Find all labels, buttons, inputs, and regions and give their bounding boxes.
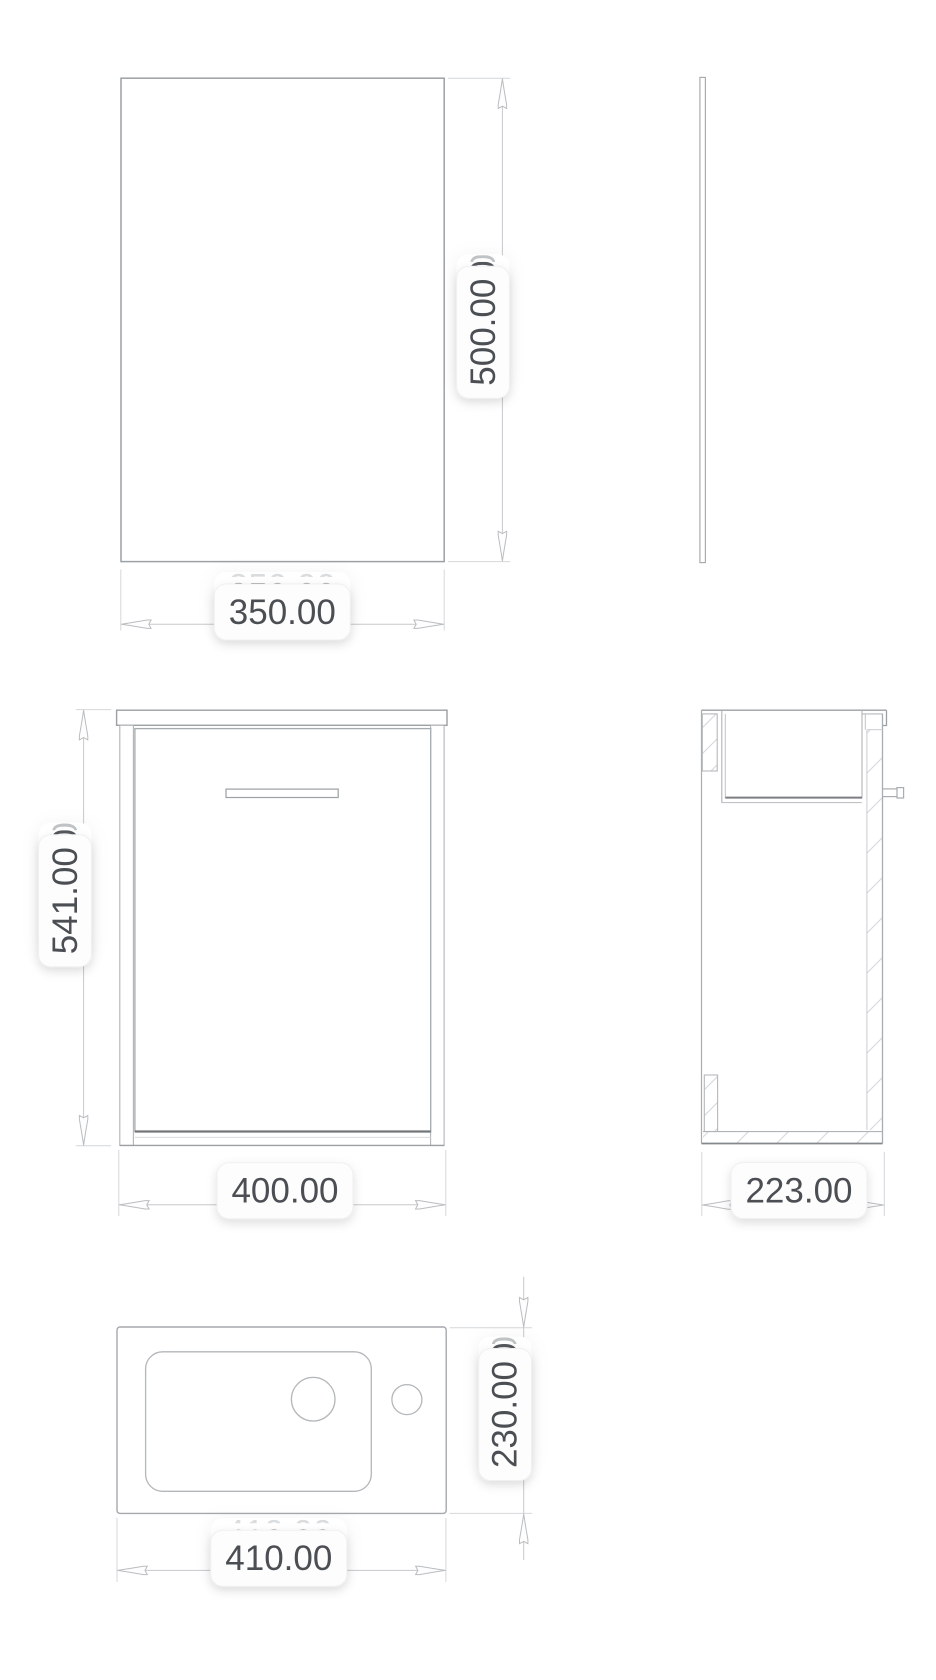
svg-text:400.00: 400.00	[231, 1172, 338, 1211]
svg-text:410.00: 410.00	[225, 1539, 332, 1578]
svg-text:541.00: 541.00	[46, 847, 85, 954]
svg-text:223.00: 223.00	[745, 1172, 852, 1211]
svg-text:500.00: 500.00	[464, 279, 503, 386]
svg-text:350.00: 350.00	[229, 593, 336, 632]
svg-text:230.00: 230.00	[485, 1361, 524, 1468]
